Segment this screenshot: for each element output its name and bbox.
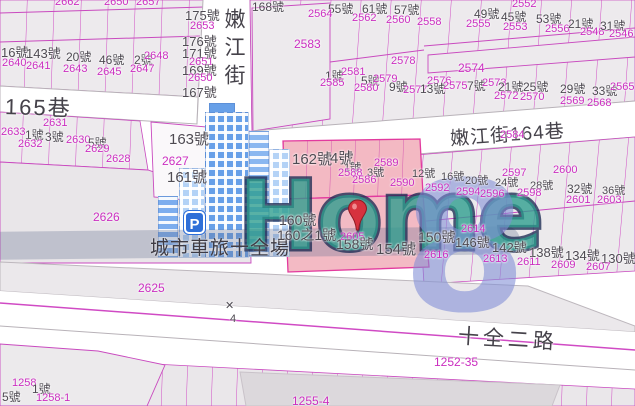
address-label: 12號 — [412, 169, 435, 181]
lot-number-label: 2580 — [354, 83, 378, 95]
parcel-labels-layer: 26622650265716號143號20號46號2號2640264126432… — [0, 0, 635, 406]
lot-number-label: 1258-1 — [36, 393, 70, 405]
lot-number-label: 2592 — [425, 183, 449, 195]
lot-number-label: 2626 — [93, 211, 120, 224]
lot-number-label: 2565 — [610, 82, 634, 94]
address-label: 4 — [230, 314, 236, 326]
lot-number-label: 2590 — [390, 178, 414, 190]
lot-number-label: 2650 — [188, 73, 212, 85]
lot-number-label: 2653 — [190, 21, 214, 33]
lot-number-label: 2641 — [26, 61, 50, 73]
lot-number-label: 2627 — [162, 155, 189, 168]
lot-number-label: 2633 — [1, 127, 25, 139]
address-label: 5號 — [2, 391, 21, 404]
lot-number-label: 2585 — [320, 78, 344, 90]
lot-number-label: 2553 — [503, 22, 527, 34]
lot-number-label: 1255-4 — [292, 395, 329, 406]
lot-number-label: 2613 — [483, 254, 507, 266]
lot-number-label: 2645 — [97, 67, 121, 79]
lot-number-label: 2648 — [144, 51, 168, 63]
lot-number-label: 2647 — [130, 64, 154, 76]
address-label: 46號 — [99, 54, 124, 67]
address-label: 20號 — [66, 51, 91, 64]
lot-number-label: 2616 — [424, 250, 448, 262]
lot-number-label: 2578 — [391, 56, 415, 68]
address-label: 161號 — [167, 170, 207, 186]
lot-number-label: 2584 — [500, 130, 524, 142]
lot-number-label: 2632 — [18, 139, 42, 151]
lot-number-label: 2594 — [456, 187, 480, 199]
lot-number-label: 2657 — [136, 0, 160, 9]
address-label: 13號 — [420, 83, 445, 96]
lot-number-label: 2575 — [443, 81, 467, 93]
address-label: 150號 — [418, 230, 455, 245]
address-label: 160號 — [279, 213, 316, 228]
map-pin-icon[interactable] — [347, 199, 368, 232]
lot-number-label: 2583 — [294, 38, 321, 51]
lot-number-label: 2614 — [461, 224, 485, 236]
lot-number-label: 2558 — [417, 17, 441, 29]
lot-number-label: 2600 — [553, 165, 577, 177]
address-label: ✕ — [225, 301, 234, 313]
lot-number-label: 2570 — [520, 92, 544, 104]
lot-number-label: 2598 — [517, 188, 541, 200]
address-label: 143號 — [26, 47, 61, 61]
lot-number-label: 2607 — [586, 262, 610, 274]
lot-number-label: 2611 — [517, 257, 541, 269]
lot-number-label: 2597 — [502, 168, 526, 180]
lot-number-label: 2552 — [512, 0, 536, 11]
lot-number-label: 2596 — [480, 189, 504, 201]
lot-number-label: 2574 — [458, 62, 485, 75]
lot-number-label: 1252-35 — [434, 356, 478, 369]
lot-number-label: 2546 — [609, 29, 633, 41]
lot-number-label: 2650 — [104, 0, 128, 9]
lot-number-label: 2564 — [308, 9, 332, 21]
address-label: 154號 — [376, 242, 416, 258]
address-label: 163號 — [169, 132, 209, 148]
lot-number-label: 2572 — [494, 91, 518, 103]
lot-number-label: 2601 — [566, 195, 590, 207]
lot-number-label: 2568 — [587, 98, 611, 110]
lot-number-label: 2560 — [386, 15, 410, 27]
address-label: 146號 — [455, 236, 490, 250]
lot-number-label: 2586 — [352, 175, 376, 187]
address-label: 168號 — [252, 1, 284, 14]
lot-number-label: 2631 — [43, 118, 67, 130]
address-label: 160之1號 — [277, 228, 336, 243]
lot-number-label: 2562 — [352, 13, 376, 25]
lot-number-label: 2625 — [138, 282, 165, 295]
lot-number-label: 2569 — [560, 96, 584, 108]
lot-number-label: 2603 — [597, 195, 621, 207]
address-label: 162號 — [292, 152, 332, 168]
lot-number-label: 2662 — [55, 0, 79, 9]
lot-number-label: 2628 — [106, 154, 130, 166]
address-label: 167號 — [182, 86, 217, 100]
address-label: 29號 — [560, 83, 585, 96]
lot-number-label: 2556 — [545, 24, 569, 36]
lot-number-label: 2640 — [2, 58, 26, 70]
lot-number-label: 2609 — [551, 260, 575, 272]
address-label: 3號 — [45, 131, 64, 144]
cadastral-map-canvas[interactable]: 城市車旅十全場 P Home 8 嫩江街 165巷 嫩江街164巷 十全二路 2… — [0, 0, 635, 406]
lot-number-label: 2643 — [63, 64, 87, 76]
address-label: 158號 — [336, 237, 373, 252]
lot-number-label: 2555 — [466, 19, 490, 31]
